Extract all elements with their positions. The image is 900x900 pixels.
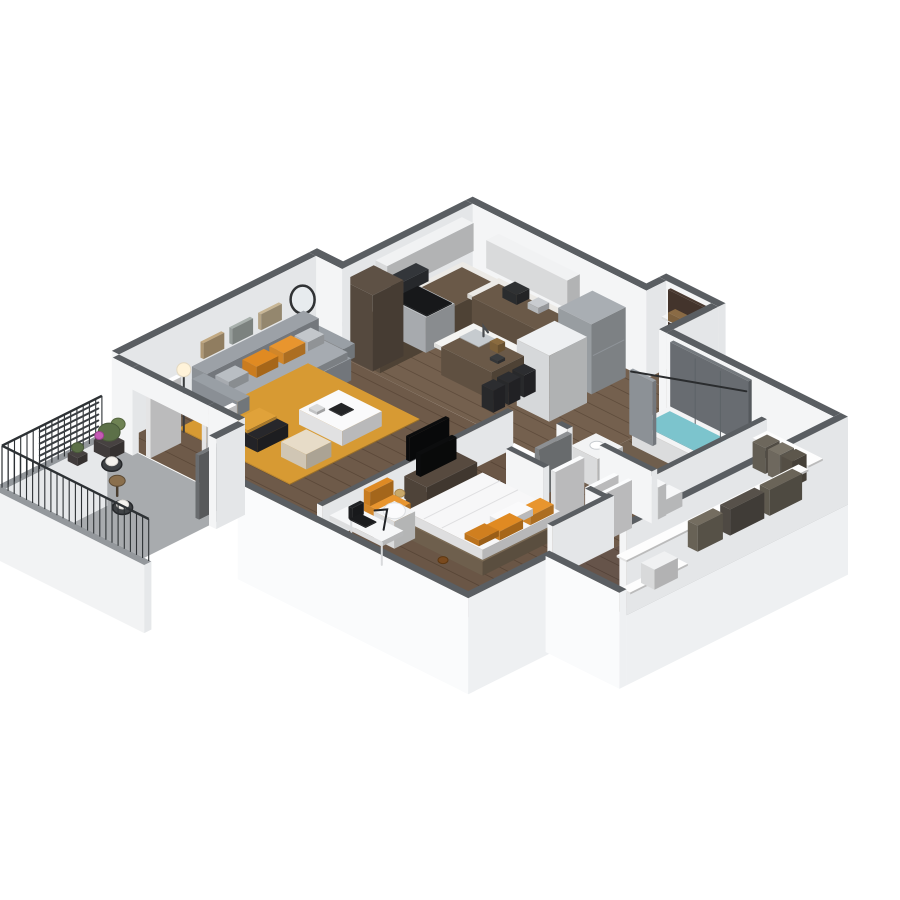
shower-curtain: [629, 369, 656, 447]
round-mirror: [291, 286, 315, 314]
floorplan-stage: [0, 0, 900, 900]
plant-foliage-3: [72, 443, 84, 453]
apartment-3d-floorplan: [0, 0, 900, 900]
bar-stool-3: [482, 379, 505, 413]
balcony-east-return-wall: [209, 421, 245, 529]
balcony-table-top: [109, 475, 125, 486]
plant-flowers-pink: [95, 432, 104, 440]
floor-lamp-shade: [177, 363, 191, 377]
balcony-chair-1-cushion: [106, 457, 118, 466]
bedside-books: [438, 557, 448, 564]
